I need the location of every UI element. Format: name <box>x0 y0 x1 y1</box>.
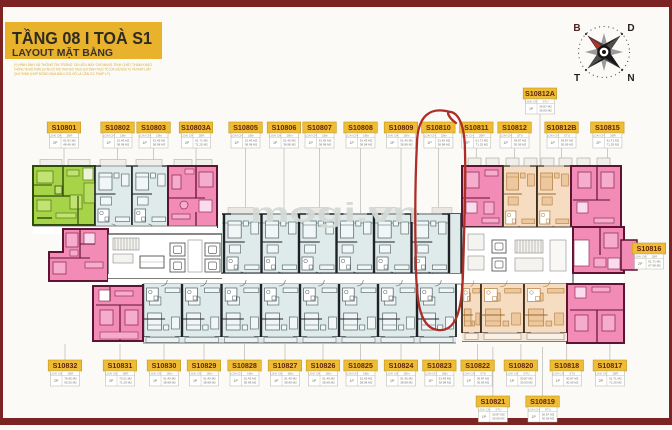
svg-text:1P: 1P <box>531 415 536 419</box>
svg-text:S10827: S10827 <box>273 361 298 370</box>
svg-text:LOẠI CH: LOẠI CH <box>346 372 358 376</box>
svg-text:1Bln: 1Bln <box>442 372 448 376</box>
svg-text:1P: 1P <box>428 379 433 383</box>
svg-text:1P: 1P <box>308 141 313 145</box>
svg-text:STU: STU <box>545 408 551 412</box>
svg-text:2P: 2P <box>109 379 114 383</box>
svg-text:1P: 1P <box>234 141 239 145</box>
svg-text:STU: STU <box>543 100 549 104</box>
svg-text:1Bln: 1Bln <box>322 134 328 138</box>
svg-text:1Bln: 1Bln <box>156 134 162 138</box>
svg-text:1P: 1P <box>529 107 534 111</box>
svg-text:1P: 1P <box>233 379 238 383</box>
svg-text:1Bln: 1Bln <box>363 134 369 138</box>
svg-text:S10805: S10805 <box>233 123 258 132</box>
svg-text:LOẠI CH: LOẠI CH <box>528 408 540 412</box>
svg-text:30.09 M2: 30.09 M2 <box>520 381 533 385</box>
svg-text:1P: 1P <box>390 141 395 145</box>
svg-text:S10815: S10815 <box>595 123 620 132</box>
svg-text:1P: 1P <box>349 379 354 383</box>
svg-text:38.98 M2: 38.98 M2 <box>322 381 335 385</box>
svg-text:S10806: S10806 <box>272 123 297 132</box>
svg-text:2BR: 2BR <box>612 372 619 376</box>
svg-text:LAYOUT MẶT BẰNG: LAYOUT MẶT BẰNG <box>12 46 113 59</box>
svg-text:71.25 M2: 71.25 M2 <box>476 143 489 147</box>
svg-text:LOẠI CH: LOẠI CH <box>547 134 559 138</box>
svg-text:2BR: 2BR <box>199 134 206 138</box>
svg-text:1P: 1P <box>274 379 279 383</box>
svg-text:LOẠI CH: LOẠI CH <box>49 134 61 138</box>
svg-text:38.98 M2: 38.98 M2 <box>284 381 297 385</box>
svg-text:38.98 M2: 38.98 M2 <box>163 381 176 385</box>
svg-text:LOẠI CH: LOẠI CH <box>270 372 282 376</box>
svg-text:S10811: S10811 <box>464 123 488 132</box>
svg-text:LOẠI CH: LOẠI CH <box>103 134 115 138</box>
svg-text:48.46 M2: 48.46 M2 <box>63 143 76 147</box>
svg-text:2P: 2P <box>465 141 470 145</box>
svg-text:1Bln: 1Bln <box>403 134 409 138</box>
svg-text:THÔNG TIN BỘ PHẬN DỰ ÁN CÓ THỂ: THÔNG TIN BỘ PHẬN DỰ ÁN CÓ THỂ THAY ĐỔI … <box>14 67 151 72</box>
svg-text:71.29 M2: 71.29 M2 <box>119 381 132 385</box>
svg-text:38.98 M2: 38.98 M2 <box>153 143 166 147</box>
svg-text:2BR: 2BR <box>123 372 130 376</box>
svg-text:S10824: S10824 <box>389 361 414 370</box>
svg-text:LOẠI CH: LOẠI CH <box>149 372 161 376</box>
svg-text:1Bln: 1Bln <box>363 372 369 376</box>
svg-text:38.98 M2: 38.98 M2 <box>319 143 332 147</box>
svg-text:38.98 M2: 38.98 M2 <box>203 381 216 385</box>
svg-text:D: D <box>627 23 634 34</box>
svg-text:S10808: S10808 <box>348 123 373 132</box>
svg-text:S10832: S10832 <box>53 361 78 370</box>
svg-text:71.25 M2: 71.25 M2 <box>607 143 620 147</box>
svg-text:1Bln: 1Bln <box>286 134 292 138</box>
svg-text:mogi.vn: mogi.vn <box>250 197 420 228</box>
svg-text:2P: 2P <box>599 379 604 383</box>
svg-text:38.98 M2: 38.98 M2 <box>244 381 257 385</box>
svg-text:(*) HÌNH ẢNH VÀ THÔNG TIN TRON: (*) HÌNH ẢNH VÀ THÔNG TIN TRONG TÀI LIỆU… <box>14 62 152 67</box>
svg-text:2BR: 2BR <box>610 134 617 138</box>
svg-text:67.98 M2: 67.98 M2 <box>648 264 661 268</box>
svg-text:S10818: S10818 <box>554 361 579 370</box>
svg-text:2BR: 2BR <box>652 255 659 259</box>
svg-text:S10812: S10812 <box>502 123 527 132</box>
svg-text:1P: 1P <box>503 141 508 145</box>
svg-text:N: N <box>627 73 634 84</box>
svg-text:38.98 M2: 38.98 M2 <box>117 143 130 147</box>
svg-text:LOẠI CH: LOẠI CH <box>139 134 151 138</box>
svg-text:38.98 M2: 38.98 M2 <box>360 143 373 147</box>
svg-text:S10831: S10831 <box>108 361 133 370</box>
svg-text:LOẠI CH: LOẠI CH <box>269 134 281 138</box>
svg-text:LOẠI CH: LOẠI CH <box>593 134 605 138</box>
svg-text:LOẠI CH: LOẠI CH <box>230 372 242 376</box>
svg-text:30.09 M2: 30.09 M2 <box>539 109 552 113</box>
svg-text:30.09 M2: 30.09 M2 <box>542 417 555 421</box>
svg-text:S10803: S10803 <box>141 123 166 132</box>
svg-text:S10803A: S10803A <box>181 123 211 132</box>
svg-text:LOẠI CH: LOẠI CH <box>308 372 320 376</box>
svg-text:S10821: S10821 <box>481 397 506 406</box>
svg-text:1Bln: 1Bln <box>120 134 126 138</box>
svg-text:1P: 1P <box>273 141 278 145</box>
svg-text:1P: 1P <box>550 141 555 145</box>
svg-text:LOẠI CH: LOẠI CH <box>50 372 62 376</box>
svg-text:90.25 M2: 90.25 M2 <box>64 381 77 385</box>
svg-text:S10802: S10802 <box>105 123 130 132</box>
svg-text:2P: 2P <box>596 141 601 145</box>
svg-text:71.25 M2: 71.25 M2 <box>609 381 622 385</box>
svg-text:S10819: S10819 <box>530 397 555 406</box>
svg-text:1P: 1P <box>427 141 432 145</box>
svg-text:S10823: S10823 <box>427 361 452 370</box>
svg-text:S10820: S10820 <box>509 361 534 370</box>
svg-text:1Bln: 1Bln <box>166 372 172 376</box>
svg-text:LOẠI CH: LOẠI CH <box>552 372 564 376</box>
svg-text:30.09 M2: 30.09 M2 <box>514 143 527 147</box>
svg-text:S10817: S10817 <box>598 361 623 370</box>
svg-text:2P: 2P <box>54 379 59 383</box>
svg-text:1Bln: 1Bln <box>325 372 331 376</box>
svg-text:S10810: S10810 <box>426 123 451 132</box>
svg-text:1Bln: 1Bln <box>441 134 447 138</box>
svg-text:2BR: 2BR <box>68 372 75 376</box>
svg-text:STU: STU <box>517 134 523 138</box>
svg-text:S10830: S10830 <box>152 361 177 370</box>
svg-text:STU: STU <box>564 134 570 138</box>
svg-text:S10826: S10826 <box>311 361 336 370</box>
svg-text:QUY ĐỊNH (HỢP ĐỒNG MUA BÁN CĆN: QUY ĐỊNH (HỢP ĐỒNG MUA BÁN CĆN HỘ LÀ CĂN… <box>14 71 110 76</box>
svg-text:TẦNG 08 I TOÀ S1: TẦNG 08 I TOÀ S1 <box>12 27 152 48</box>
svg-text:LOẠI CH: LOẠI CH <box>525 100 537 104</box>
svg-text:30.09 M2: 30.09 M2 <box>477 381 490 385</box>
svg-text:LOẠI CH: LOẠI CH <box>595 372 607 376</box>
svg-text:38.98 M2: 38.98 M2 <box>438 143 451 147</box>
svg-text:S10816: S10816 <box>637 244 662 253</box>
svg-text:1Bln: 1Bln <box>248 134 254 138</box>
svg-text:1P: 1P <box>390 379 395 383</box>
svg-text:S10812B: S10812B <box>547 123 577 132</box>
svg-text:LOẠI CH: LOẠI CH <box>425 372 437 376</box>
svg-text:1P: 1P <box>510 379 515 383</box>
svg-text:1P: 1P <box>467 379 472 383</box>
svg-text:LOẠI CH: LOẠI CH <box>189 372 201 376</box>
svg-text:S10809: S10809 <box>389 123 414 132</box>
svg-text:LOẠI CH: LOẠI CH <box>500 134 512 138</box>
svg-text:S10801: S10801 <box>52 123 77 132</box>
svg-text:LOẠI CH: LOẠI CH <box>424 134 436 138</box>
svg-text:38.98 M2: 38.98 M2 <box>283 143 296 147</box>
svg-text:2BR: 2BR <box>479 134 486 138</box>
svg-text:1P: 1P <box>556 379 561 383</box>
svg-text:1P: 1P <box>193 379 198 383</box>
svg-text:S10825: S10825 <box>348 361 373 370</box>
svg-text:1P: 1P <box>142 141 147 145</box>
svg-text:1Bln: 1Bln <box>247 372 253 376</box>
svg-text:STU: STU <box>569 372 575 376</box>
svg-text:S10822: S10822 <box>465 361 490 370</box>
svg-text:1P: 1P <box>312 379 317 383</box>
svg-text:30.09 M2: 30.09 M2 <box>566 381 579 385</box>
svg-text:S10807: S10807 <box>307 123 332 132</box>
svg-text:1Bln: 1Bln <box>403 372 409 376</box>
svg-text:LOẠI CH: LOẠI CH <box>506 372 518 376</box>
svg-text:71.25 M2: 71.25 M2 <box>195 143 208 147</box>
svg-text:B: B <box>573 23 580 34</box>
svg-text:1P: 1P <box>153 379 158 383</box>
svg-text:LOẠI CH: LOẠI CH <box>181 134 193 138</box>
svg-text:2P: 2P <box>638 262 643 266</box>
svg-text:LOẠI CH: LOẠI CH <box>478 408 490 412</box>
svg-text:38.98 M2: 38.98 M2 <box>245 143 258 147</box>
svg-text:2BR: 2BR <box>67 134 74 138</box>
svg-text:LOẠI CH: LOẠI CH <box>463 372 475 376</box>
svg-text:38.98 M2: 38.98 M2 <box>439 381 452 385</box>
svg-text:LOẠI CH: LOẠI CH <box>231 134 243 138</box>
svg-text:S10829: S10829 <box>192 361 217 370</box>
svg-text:S10812A: S10812A <box>525 89 555 98</box>
svg-text:LOẠI CH: LOẠI CH <box>634 255 646 259</box>
svg-text:T: T <box>574 73 580 84</box>
svg-text:38.98 M2: 38.98 M2 <box>400 381 413 385</box>
svg-text:38.98 M2: 38.98 M2 <box>360 381 373 385</box>
svg-text:1Bln: 1Bln <box>287 372 293 376</box>
svg-text:2P: 2P <box>53 141 58 145</box>
svg-text:1P: 1P <box>106 141 111 145</box>
svg-text:LOẠI CH: LOẠI CH <box>346 134 358 138</box>
svg-text:STU: STU <box>480 372 486 376</box>
svg-text:STU: STU <box>495 408 501 412</box>
svg-text:38.98 M2: 38.98 M2 <box>400 143 413 147</box>
svg-text:STU: STU <box>523 372 529 376</box>
svg-text:1P: 1P <box>349 141 354 145</box>
svg-text:1P: 1P <box>482 415 487 419</box>
svg-text:LOẠI CH: LOẠI CH <box>105 372 117 376</box>
svg-text:LOẠI CH: LOẠI CH <box>386 134 398 138</box>
svg-text:LOẠI CH: LOẠI CH <box>386 372 398 376</box>
svg-text:LOẠI CH: LOẠI CH <box>305 134 317 138</box>
svg-text:30.09 M2: 30.09 M2 <box>492 417 505 421</box>
svg-text:1Bln: 1Bln <box>206 372 212 376</box>
svg-text:S10828: S10828 <box>232 361 257 370</box>
svg-text:30.09 M2: 30.09 M2 <box>561 143 574 147</box>
svg-text:2P: 2P <box>185 141 190 145</box>
